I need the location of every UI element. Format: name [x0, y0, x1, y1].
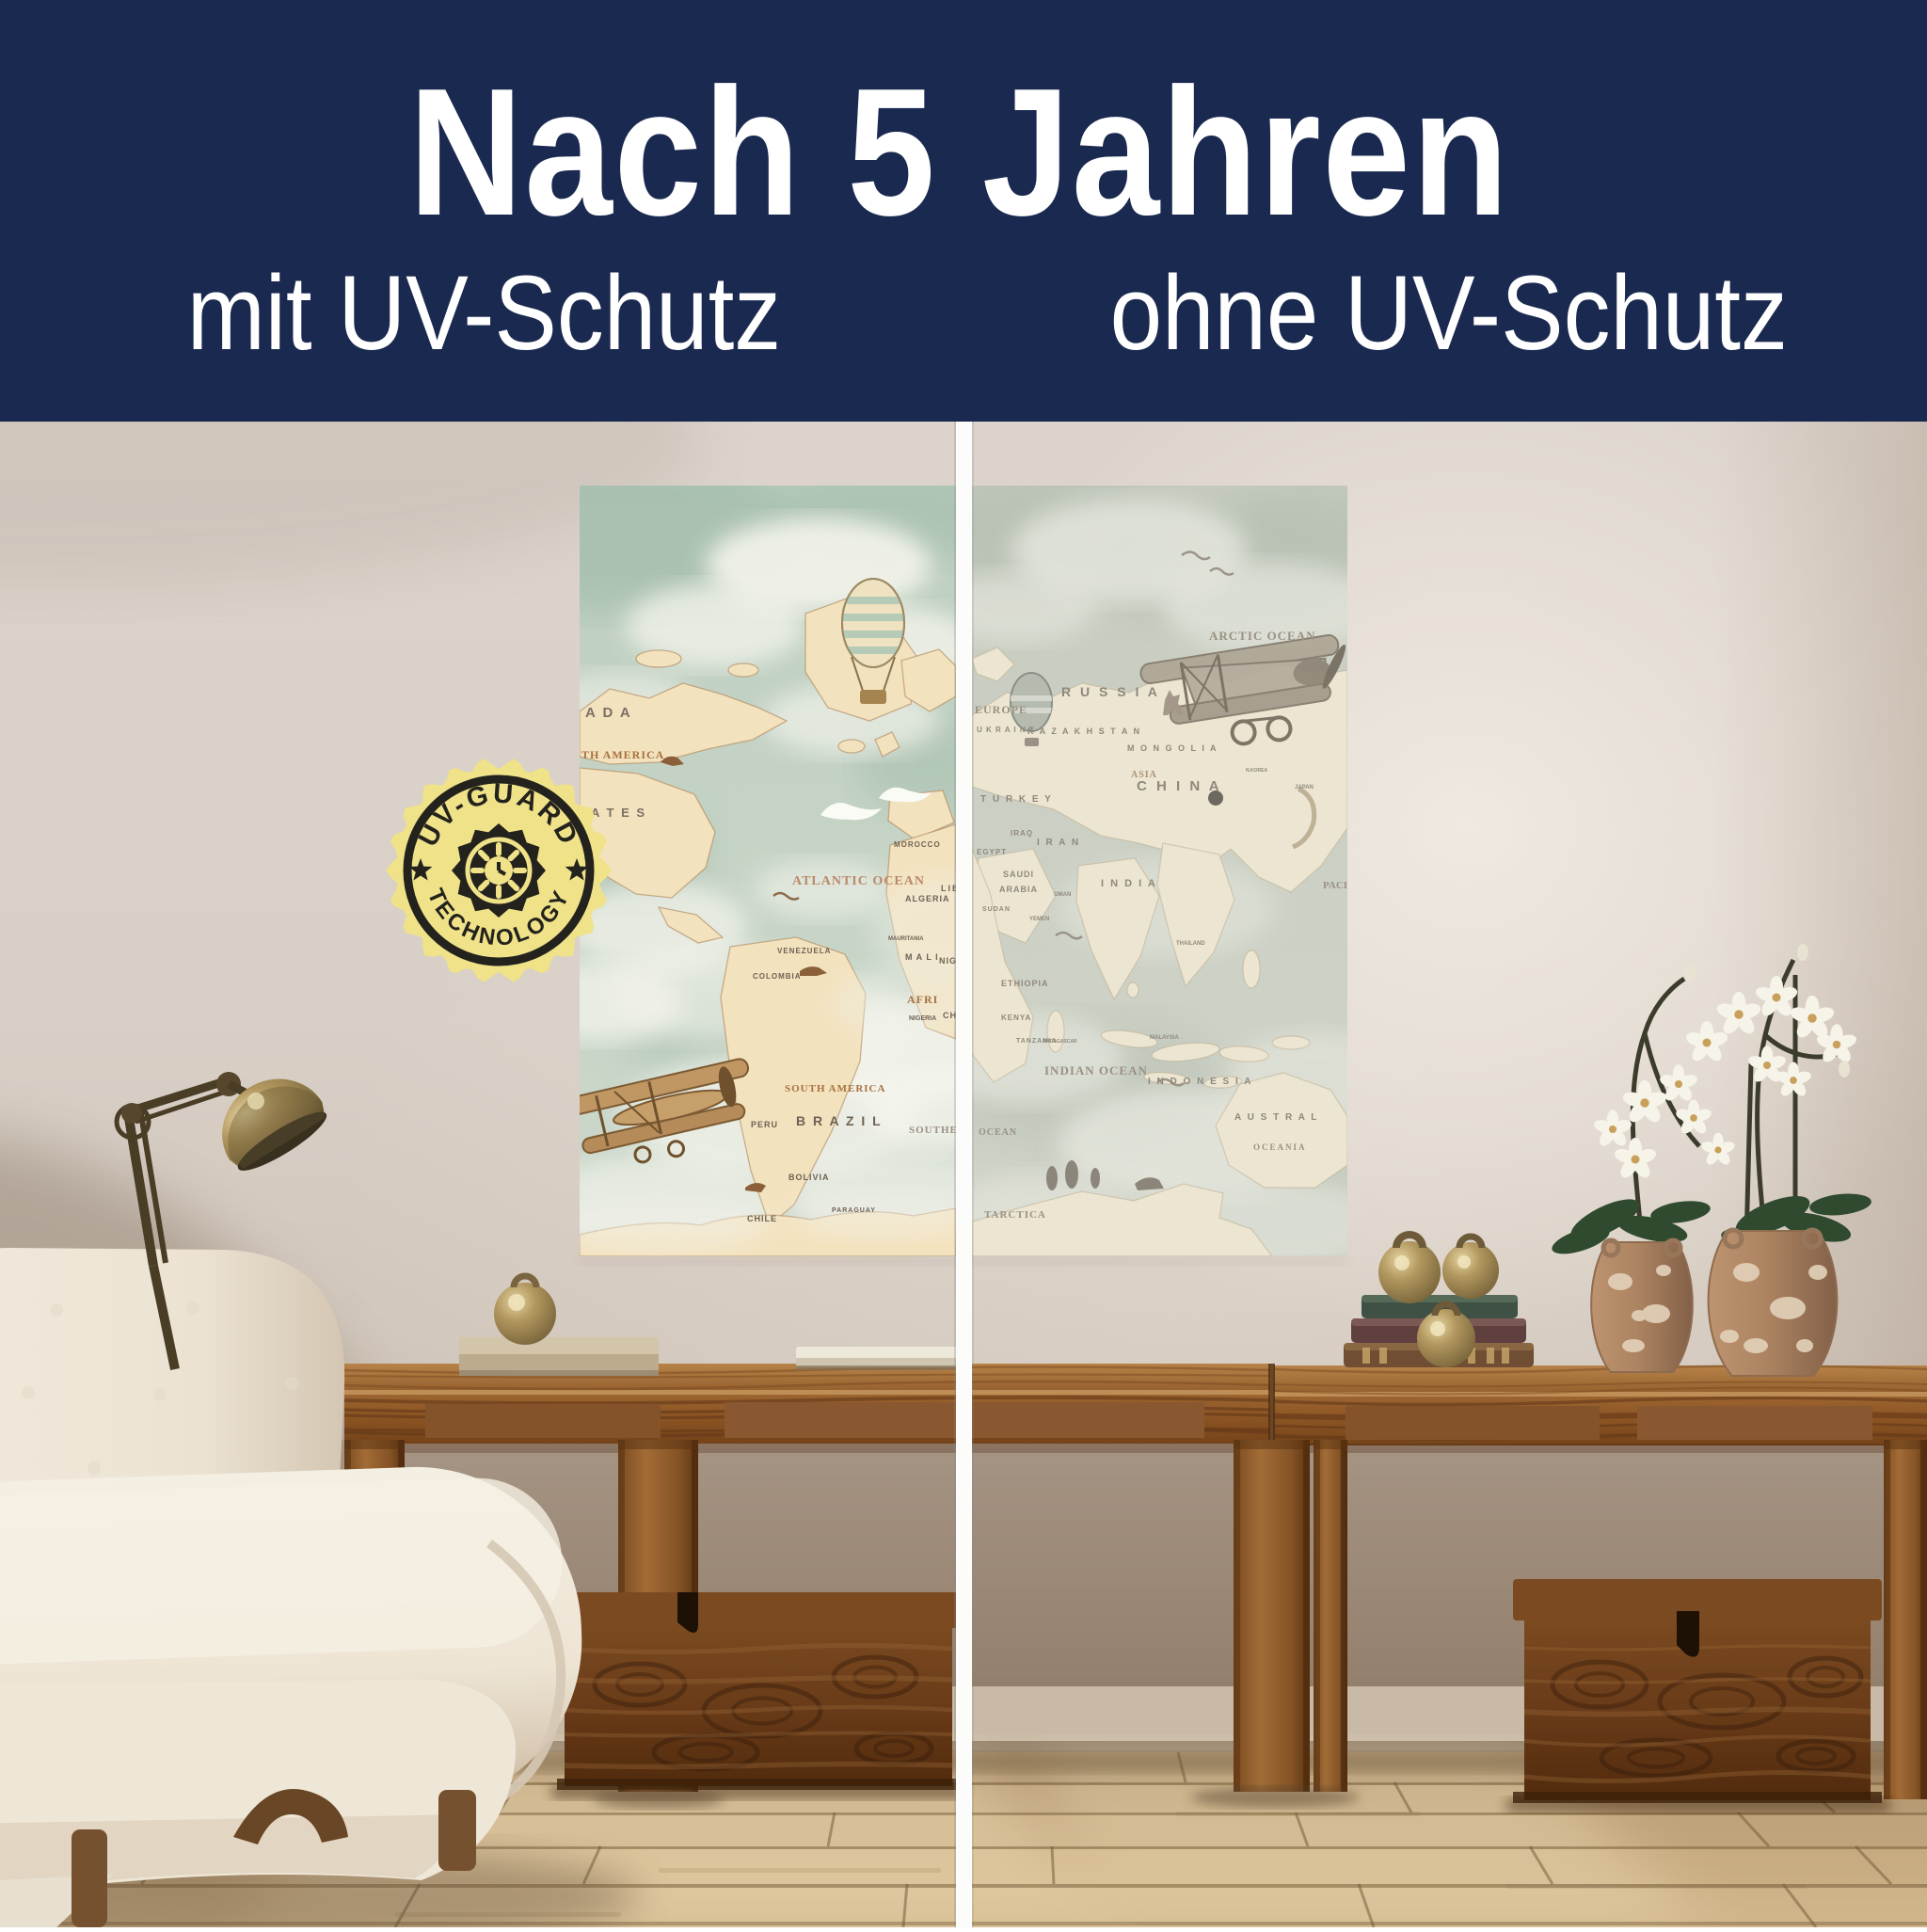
svg-text:T U R K E Y: T U R K E Y — [980, 794, 1053, 805]
svg-text:THAILAND: THAILAND — [1176, 941, 1205, 947]
svg-text:EUROPE: EUROPE — [975, 703, 1027, 716]
svg-text:ATLANTIC OCEAN: ATLANTIC OCEAN — [792, 874, 925, 888]
svg-text:I N D O N E S I A: I N D O N E S I A — [1148, 1077, 1252, 1087]
svg-text:ARCTIC OCEAN: ARCTIC OCEAN — [1209, 629, 1315, 643]
svg-text:PERU: PERU — [751, 1120, 778, 1129]
svg-text:OCEANIA: OCEANIA — [1253, 1142, 1307, 1152]
svg-text:INDIAN OCEAN: INDIAN OCEAN — [1044, 1063, 1148, 1078]
svg-text:TH AMERICA: TH AMERICA — [581, 748, 664, 761]
svg-text:AFRI: AFRI — [907, 993, 938, 1006]
svg-text:A T E S: A T E S — [591, 806, 646, 820]
svg-text:C H I N A: C H I N A — [1137, 778, 1222, 794]
svg-text:MOROCCO: MOROCCO — [894, 840, 941, 849]
svg-text:N.KOREA: N.KOREA — [1246, 768, 1267, 774]
svg-text:mit UV-Schutz: mit UV-Schutz — [187, 255, 781, 373]
svg-text:SOUTH AMERICA: SOUTH AMERICA — [785, 1083, 885, 1094]
svg-text:K A Z A K H S T A N: K A Z A K H S T A N — [1027, 726, 1141, 736]
svg-text:BOLIVIA: BOLIVIA — [788, 1173, 830, 1182]
svg-text:NIGERIA: NIGERIA — [909, 1015, 936, 1022]
svg-text:ARABIA: ARABIA — [999, 885, 1038, 894]
svg-text:B R A Z I L: B R A Z I L — [796, 1113, 883, 1128]
svg-text:COLOMBIA: COLOMBIA — [753, 972, 802, 981]
svg-text:VENEZUELA: VENEZUELA — [777, 947, 831, 955]
svg-text:ASIA: ASIA — [1131, 770, 1157, 780]
svg-text:ALGERIA: ALGERIA — [905, 894, 950, 903]
svg-text:JAPAN: JAPAN — [1295, 785, 1314, 790]
svg-text:SAUDI: SAUDI — [1003, 870, 1034, 879]
svg-text:PARAGUAY: PARAGUAY — [832, 1207, 876, 1214]
svg-text:KENYA: KENYA — [1001, 1014, 1031, 1022]
svg-text:SOUTHE: SOUTHE — [909, 1125, 958, 1136]
svg-text:YEMEN: YEMEN — [1029, 917, 1049, 922]
svg-text:EGYPT: EGYPT — [977, 848, 1007, 856]
svg-text:ETHIOPIA: ETHIOPIA — [1001, 979, 1049, 988]
svg-text:OCEAN: OCEAN — [979, 1127, 1017, 1138]
svg-text:U K R A I N E: U K R A I N E — [977, 726, 1035, 734]
svg-text:A D A: A D A — [585, 705, 632, 721]
svg-text:MAURITANIA: MAURITANIA — [888, 936, 924, 942]
svg-text:MALAYSIA: MALAYSIA — [1150, 1035, 1179, 1041]
svg-text:ohne UV-Schutz: ohne UV-Schutz — [1110, 255, 1788, 373]
svg-text:CHILE: CHILE — [747, 1214, 777, 1223]
svg-text:M A L I: M A L I — [905, 952, 939, 962]
svg-text:MADAGASCAR: MADAGASCAR — [1043, 1039, 1077, 1045]
svg-text:I R A N: I R A N — [1037, 838, 1080, 848]
svg-text:SUDAN: SUDAN — [982, 906, 1011, 913]
svg-text:I N D I A: I N D I A — [1101, 878, 1157, 889]
svg-text:R U S S I A: R U S S I A — [1061, 684, 1160, 699]
svg-text:Nach 5 Jahren: Nach 5 Jahren — [408, 51, 1509, 254]
svg-text:TARCTICA: TARCTICA — [984, 1209, 1046, 1221]
svg-text:IRAQ: IRAQ — [1011, 829, 1033, 838]
svg-text:A U S T R A L: A U S T R A L — [1234, 1112, 1318, 1123]
svg-text:M O N G O L I A: M O N G O L I A — [1127, 743, 1218, 753]
svg-text:OMAN: OMAN — [1054, 892, 1071, 898]
